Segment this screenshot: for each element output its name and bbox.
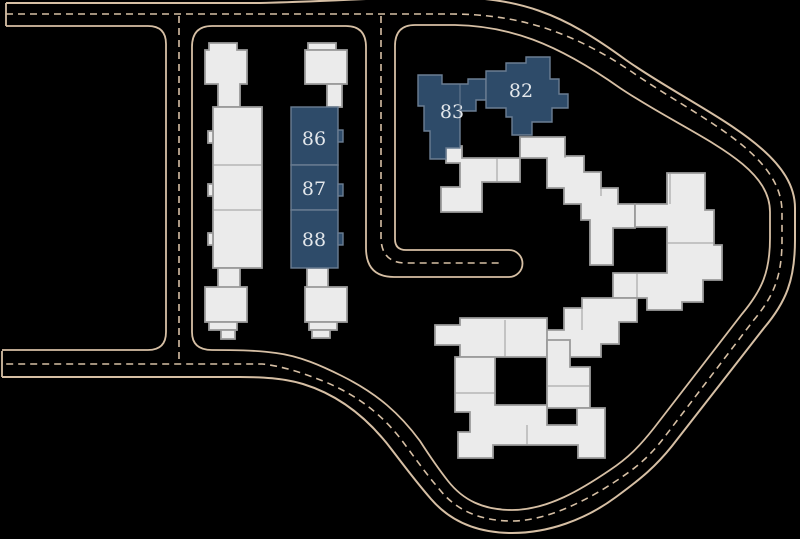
strip-east-north-step — [308, 43, 336, 50]
road-inner-edge-west — [2, 26, 166, 350]
building-87-tab — [338, 184, 343, 196]
building-87[interactable]: 87 — [291, 165, 343, 210]
building-86-shape[interactable] — [291, 107, 338, 165]
building-87-shape[interactable] — [291, 165, 338, 210]
building-82-shape[interactable] — [486, 57, 568, 135]
strip-east-south-neck — [307, 268, 328, 288]
strip-east-north-neck — [327, 84, 342, 107]
strip-west-tab-2 — [208, 184, 213, 196]
cluster-b-wrap — [613, 173, 722, 310]
cluster-a-south-wing — [441, 146, 520, 212]
strip-west-south-neck — [218, 268, 240, 288]
site-plan-canvas: 83 82 86 87 88 — [0, 0, 800, 539]
building-88[interactable]: 88 — [291, 210, 343, 268]
strip-west-tab-3 — [208, 233, 213, 245]
strip-west-north-cap — [205, 43, 247, 107]
building-83-shape[interactable] — [418, 75, 486, 159]
courtyard-cluster — [435, 137, 722, 458]
strip-west-south-foot — [221, 330, 235, 339]
site-plan: 83 82 86 87 88 — [0, 0, 800, 539]
strip-east-south-step — [309, 322, 337, 330]
building-86-tab — [338, 130, 343, 142]
strip-west-south-step — [209, 322, 237, 330]
strip-west-south-cap — [205, 287, 247, 322]
building-83[interactable]: 83 — [418, 75, 486, 159]
strip-west-body — [213, 107, 262, 268]
cluster-c-northwest-wing — [435, 318, 547, 357]
building-88-shape[interactable] — [291, 210, 338, 268]
building-86[interactable]: 86 — [291, 107, 343, 165]
strip-east-south-foot — [312, 330, 330, 338]
strip-west-tab-1 — [208, 131, 213, 143]
building-strip-west — [205, 43, 262, 339]
cluster-chain-a-to-b — [520, 137, 635, 265]
road-centerline-main — [2, 14, 782, 521]
strip-east-north-cap — [305, 50, 347, 84]
strip-east-south-cap — [305, 287, 347, 322]
building-88-tab — [338, 233, 343, 245]
